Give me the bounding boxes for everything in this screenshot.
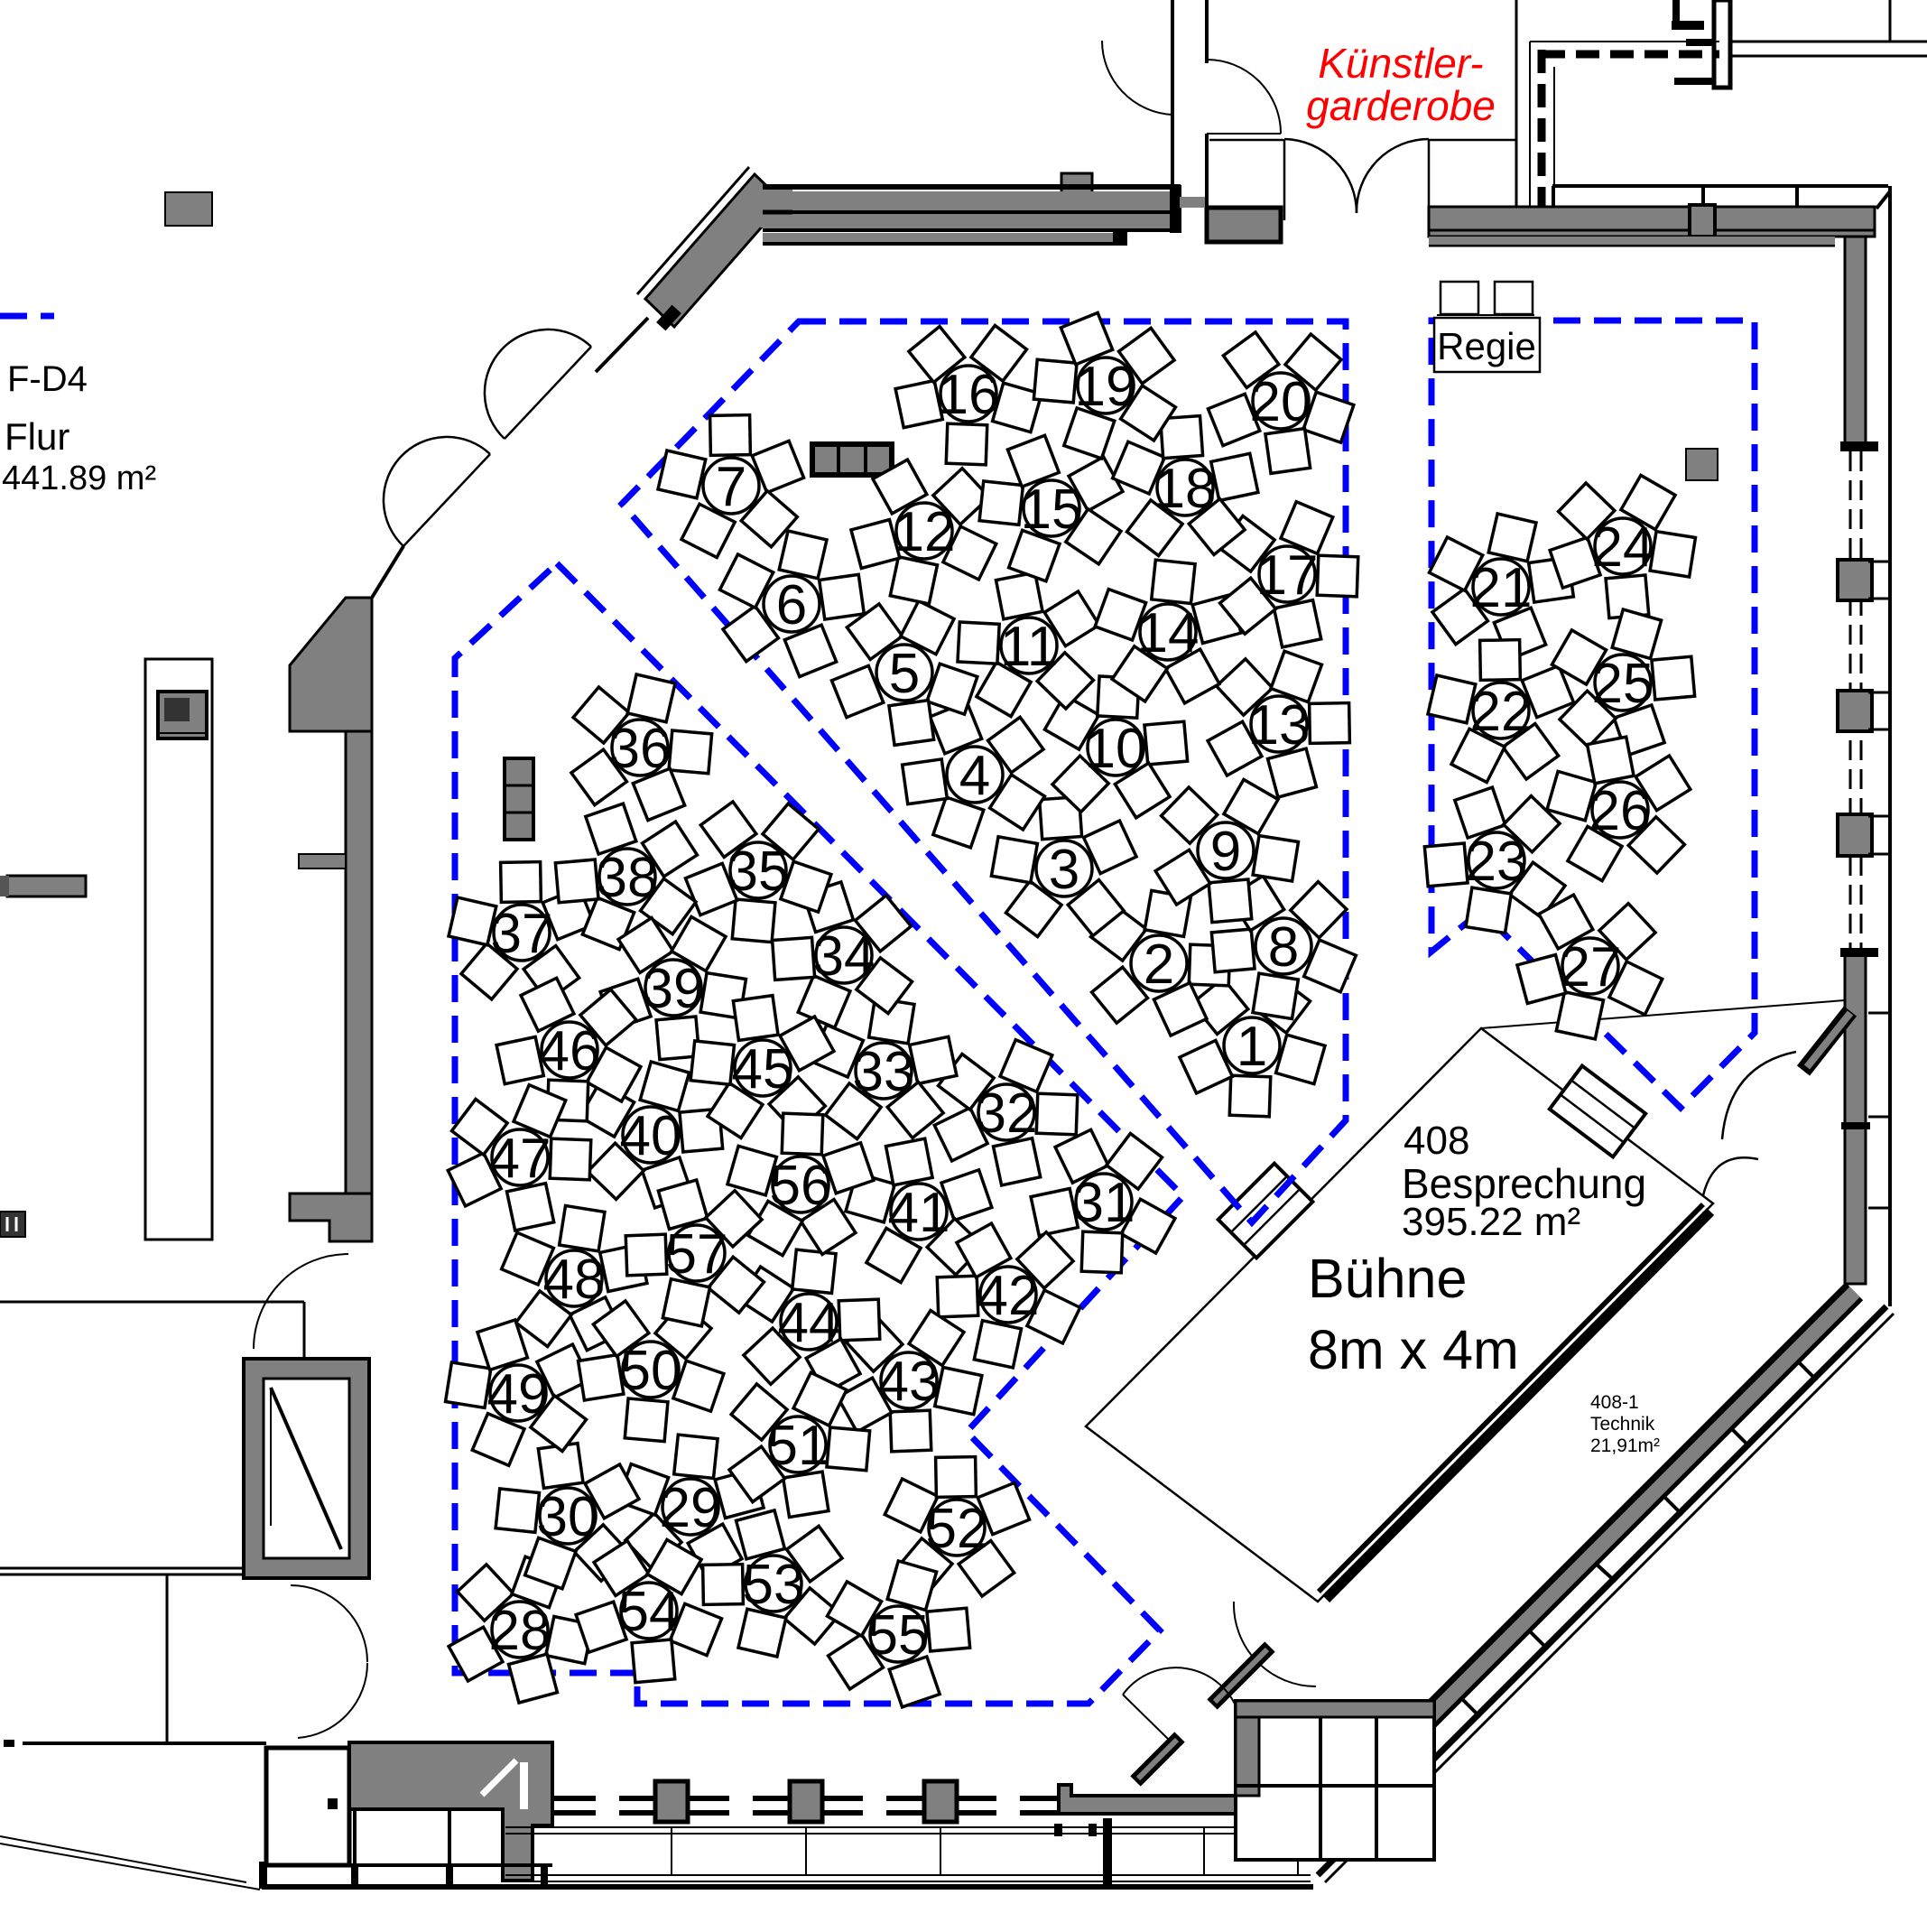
svg-text:32: 32 — [976, 1082, 1038, 1145]
svg-text:55: 55 — [867, 1604, 930, 1667]
svg-text:33: 33 — [853, 1041, 915, 1103]
svg-text:26: 26 — [1589, 780, 1652, 842]
svg-text:18: 18 — [1154, 458, 1217, 520]
svg-text:56: 56 — [770, 1155, 832, 1217]
svg-text:40: 40 — [620, 1105, 682, 1167]
svg-text:23: 23 — [1466, 831, 1528, 893]
svg-text:Regie: Regie — [1437, 325, 1536, 367]
svg-text:25: 25 — [1592, 653, 1654, 715]
svg-text:38: 38 — [597, 847, 659, 909]
svg-text:50: 50 — [620, 1340, 682, 1402]
svg-text:15: 15 — [1021, 478, 1083, 541]
svg-text:24: 24 — [1592, 516, 1654, 579]
svg-text:35: 35 — [727, 841, 790, 903]
svg-text:46: 46 — [539, 1020, 601, 1082]
svg-text:3: 3 — [1049, 839, 1079, 901]
svg-text:Flur: Flur — [5, 415, 69, 458]
svg-text:6: 6 — [776, 574, 807, 636]
svg-text:43: 43 — [878, 1351, 940, 1413]
svg-text:31: 31 — [1073, 1172, 1135, 1234]
svg-text:51: 51 — [767, 1415, 829, 1477]
svg-text:36: 36 — [609, 718, 672, 780]
svg-text:10: 10 — [1085, 718, 1147, 780]
svg-text:30: 30 — [537, 1486, 599, 1548]
svg-text:1: 1 — [1237, 1016, 1267, 1078]
svg-text:19: 19 — [1075, 356, 1137, 418]
svg-text:49: 49 — [487, 1363, 550, 1426]
svg-text:F-D4: F-D4 — [7, 359, 88, 399]
svg-text:5: 5 — [889, 643, 920, 705]
svg-text:17: 17 — [1256, 544, 1319, 607]
svg-text:21,91m²: 21,91m² — [1590, 1435, 1660, 1456]
svg-text:48: 48 — [543, 1249, 606, 1311]
svg-text:57: 57 — [666, 1223, 728, 1286]
svg-text:21: 21 — [1470, 557, 1533, 619]
svg-text:Künstler-: Künstler- — [1318, 40, 1483, 87]
svg-text:20: 20 — [1250, 371, 1312, 433]
svg-text:408: 408 — [1404, 1119, 1469, 1163]
svg-text:54: 54 — [618, 1581, 681, 1643]
svg-text:441.89 m²: 441.89 m² — [2, 460, 156, 497]
svg-text:4: 4 — [959, 745, 990, 807]
svg-text:13: 13 — [1248, 694, 1311, 757]
svg-text:2: 2 — [1144, 933, 1174, 996]
svg-text:42: 42 — [977, 1265, 1040, 1327]
svg-text:garderobe: garderobe — [1306, 82, 1496, 129]
svg-text:8: 8 — [1268, 916, 1299, 979]
svg-text:27: 27 — [1560, 936, 1622, 999]
svg-text:44: 44 — [778, 1292, 840, 1354]
svg-text:34: 34 — [813, 925, 875, 988]
svg-text:45: 45 — [732, 1038, 794, 1101]
svg-text:52: 52 — [926, 1498, 988, 1560]
svg-text:12: 12 — [894, 501, 956, 563]
svg-text:Bühne: Bühne — [1308, 1248, 1467, 1309]
svg-text:39: 39 — [643, 958, 705, 1020]
svg-text:408-1: 408-1 — [1590, 1392, 1639, 1413]
svg-text:37: 37 — [491, 903, 553, 965]
svg-text:8m x 4m: 8m x 4m — [1308, 1319, 1519, 1380]
svg-text:41: 41 — [888, 1182, 950, 1244]
svg-text:14: 14 — [1137, 602, 1200, 664]
svg-text:16: 16 — [938, 364, 1000, 426]
svg-text:28: 28 — [489, 1600, 551, 1662]
svg-text:47: 47 — [489, 1128, 551, 1190]
svg-text:11: 11 — [1000, 616, 1058, 678]
svg-text:29: 29 — [660, 1477, 722, 1539]
svg-text:7: 7 — [716, 456, 746, 518]
svg-text:9: 9 — [1210, 821, 1241, 883]
svg-text:Technik: Technik — [1590, 1414, 1655, 1435]
svg-text:53: 53 — [743, 1554, 805, 1616]
svg-text:395.22 m²: 395.22 m² — [1402, 1200, 1580, 1244]
svg-text:22: 22 — [1470, 681, 1533, 743]
